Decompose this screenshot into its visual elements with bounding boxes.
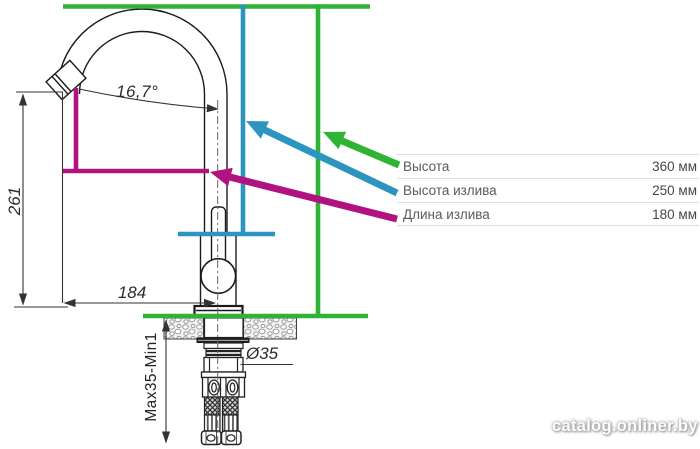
overall-height-label: 261 — [5, 169, 25, 233]
ball-joint — [201, 259, 236, 294]
gooseneck-spout — [46, 9, 227, 232]
faucet-column — [195, 207, 243, 316]
angle-label: 16,7° — [116, 82, 158, 102]
hole-diameter-label: Ø35 — [246, 344, 278, 364]
spec-label: Высота излива — [403, 183, 497, 198]
faucet-spec-diagram: 16,7° 261 184 Ø35 Max35-Min1 Высота 360 … — [0, 0, 700, 449]
spec-value: 250 мм — [652, 183, 697, 198]
spec-table: Высота 360 мм Высота излива 250 мм Длина… — [397, 154, 699, 226]
mounting-hardware — [197, 318, 250, 445]
spec-row-spout-length: Длина излива 180 мм — [397, 203, 699, 226]
spec-row-height: Высота 360 мм — [397, 155, 699, 179]
spec-row-spout-height: Высота излива 250 мм — [397, 179, 699, 203]
spec-value: 360 мм — [652, 159, 697, 174]
mount-thickness-label: Max35-Min1 — [143, 318, 161, 436]
spec-label: Длина излива — [403, 207, 490, 222]
spout-length-callout-arrow-icon — [210, 168, 397, 219]
hose-end-nuts — [202, 431, 242, 445]
spec-label: Высота — [403, 159, 449, 174]
site-watermark: catalog.onliner.by — [552, 417, 698, 436]
spec-value: 180 мм — [652, 207, 697, 222]
spout-reach-label: 184 — [101, 283, 163, 303]
